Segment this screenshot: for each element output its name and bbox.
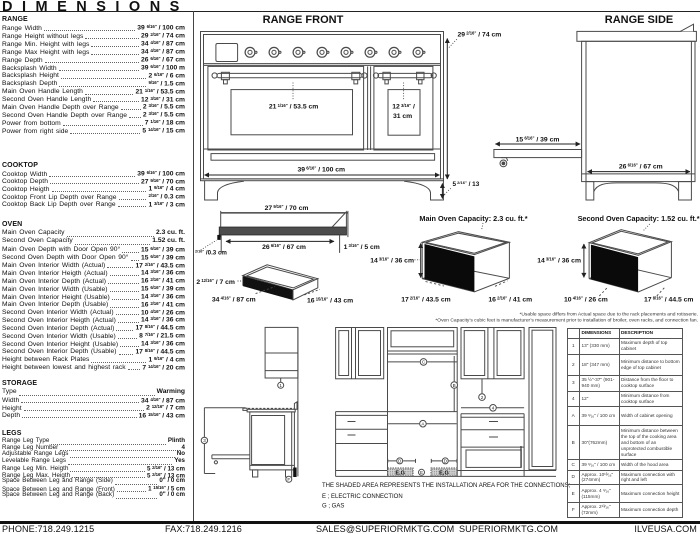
svg-text:39 6/16" / 100 cm: 39 6/16" / 100 cm xyxy=(298,166,346,174)
svg-text:*Oven Capacity’s cubic feet is: *Oven Capacity’s cubic feet is manufactu… xyxy=(435,318,698,324)
svg-text:15 6/16" / 39 cm: 15 6/16" / 39 cm xyxy=(516,136,560,144)
svg-text:12 3/16" /: 12 3/16" / xyxy=(392,103,415,111)
svg-text:31 cm: 31 cm xyxy=(393,113,412,120)
svg-text:16 2/16" / 41 cm: 16 2/16" / 41 cm xyxy=(488,296,532,304)
svg-text:2: 2 xyxy=(481,395,484,400)
svg-text:1 3/16" / 5 cm: 1 3/16" / 5 cm xyxy=(344,243,380,251)
svg-text:E,G: E,G xyxy=(395,470,405,476)
svg-text:26 6/16" / 67 cm: 26 6/16" / 67 cm xyxy=(619,163,663,171)
svg-text:10 4/16" / 26 cm: 10 4/16" / 26 cm xyxy=(564,296,608,304)
svg-text:27 9/16" / 70 cm: 27 9/16" / 70 cm xyxy=(265,204,309,212)
svg-text:E: E xyxy=(420,470,423,475)
svg-text:RANGE SIDE: RANGE SIDE xyxy=(605,14,673,26)
svg-text:34 4/16" / 87 cm: 34 4/16" / 87 cm xyxy=(212,296,256,304)
svg-text:4: 4 xyxy=(492,406,495,411)
svg-text:3: 3 xyxy=(203,438,206,443)
svg-text:2/16" /0.3 cm: 2/16" /0.3 cm xyxy=(195,250,227,257)
svg-text:21 1/16" / 53.5 cm: 21 1/16" / 53.5 cm xyxy=(269,103,318,111)
svg-text:THE SHADED AREA REPRESENTS THE: THE SHADED AREA REPRESENTS THE INSTALLAT… xyxy=(322,483,571,489)
svg-text:29 2/16" / 74 cm: 29 2/16" / 74 cm xyxy=(458,31,502,39)
svg-text:E ; ELECTRIC CONNECTION: E ; ELECTRIC CONNECTION xyxy=(322,494,403,500)
svg-text:5 2/16" / 13: 5 2/16" / 13 xyxy=(453,180,480,188)
svg-text:Second Oven Capacity: 1.52 cu.: Second Oven Capacity: 1.52 cu. ft.* xyxy=(578,214,700,223)
svg-text:Main Oven Capacity: 2.3 cu. ft: Main Oven Capacity: 2.3 cu. ft.* xyxy=(419,214,527,223)
svg-text:16 15/16" / 43 cm: 16 15/16" / 43 cm xyxy=(307,297,353,305)
svg-text:RANGE FRONT: RANGE FRONT xyxy=(263,14,344,26)
svg-text:14 3/16" / 36 cm: 14 3/16" / 36 cm xyxy=(537,257,581,265)
svg-text:G ; GAS: G ; GAS xyxy=(322,503,344,509)
svg-text:*Usable space differs from Act: *Usable space differs from Actual space … xyxy=(519,312,698,318)
svg-text:1: 1 xyxy=(279,383,282,388)
svg-text:17 2/16" / 43.5 cm: 17 2/16" / 43.5 cm xyxy=(401,296,450,304)
svg-text:26 6/16" / 67 cm: 26 6/16" / 67 cm xyxy=(262,243,306,251)
svg-text:17 8/16" / 44.5 cm: 17 8/16" / 44.5 cm xyxy=(644,296,693,304)
svg-text:B: B xyxy=(453,383,456,388)
svg-text:F: F xyxy=(287,477,290,482)
svg-text:2 12/16" / 7 cm: 2 12/16" / 7 cm xyxy=(196,278,235,286)
svg-text:E,G: E,G xyxy=(439,470,449,476)
svg-text:14 3/16" / 36 cm: 14 3/16" / 36 cm xyxy=(370,257,414,265)
